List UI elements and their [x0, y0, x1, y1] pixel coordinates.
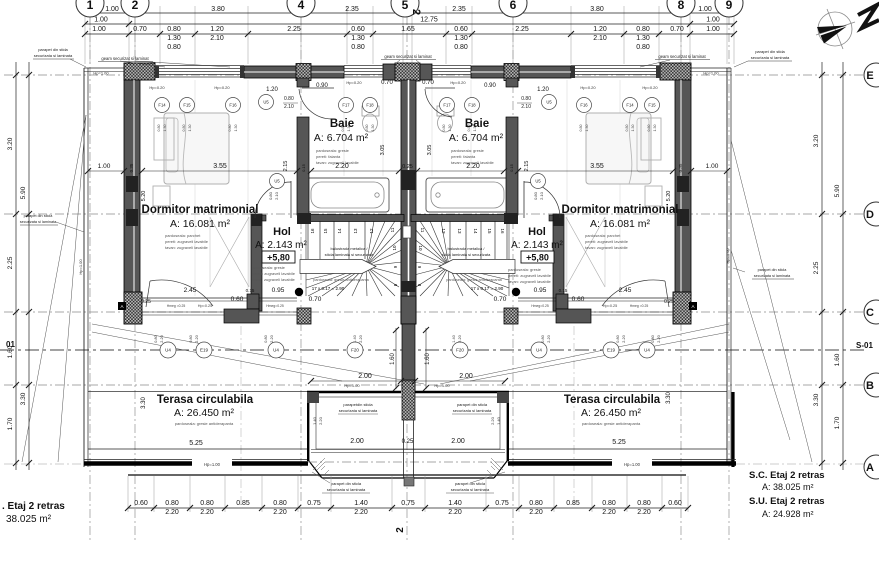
svg-text:3.55: 3.55 [590, 163, 604, 170]
svg-text:1.30: 1.30 [631, 125, 635, 132]
svg-text:2.00: 2.00 [451, 438, 465, 445]
svg-text:0.80: 0.80 [616, 335, 620, 342]
svg-text:12: 12 [369, 228, 374, 234]
svg-text:1.30: 1.30 [371, 125, 375, 132]
svg-text:B: B [866, 380, 874, 392]
svg-text:2.20: 2.20 [354, 509, 368, 516]
svg-text:0.80: 0.80 [284, 96, 294, 102]
svg-text:1.20: 1.20 [593, 26, 607, 33]
svg-text:2.20: 2.20 [200, 509, 214, 516]
svg-text:0.80: 0.80 [579, 125, 583, 132]
svg-text:3.30: 3.30 [813, 393, 820, 406]
svg-text:+5,80: +5,80 [267, 253, 290, 263]
svg-text:1.30: 1.30 [653, 125, 657, 132]
svg-text:1.00: 1.00 [105, 6, 119, 13]
svg-text:1.00: 1.00 [98, 163, 111, 170]
svg-text:Hp=0.20: Hp=0.20 [580, 85, 596, 90]
svg-text:1.30: 1.30 [585, 125, 589, 132]
svg-text:1.60: 1.60 [834, 353, 841, 366]
svg-text:0.80: 0.80 [228, 125, 232, 132]
svg-text:2.25: 2.25 [515, 26, 529, 33]
svg-text:E19: E19 [607, 348, 616, 353]
svg-text:A: 26.450 m²: A: 26.450 m² [581, 407, 642, 419]
svg-text:1.20: 1.20 [266, 87, 278, 93]
svg-text:2.25: 2.25 [813, 261, 820, 274]
svg-text:Dormitor matrimonial: Dormitor matrimonial [142, 204, 259, 216]
svg-text:0.60: 0.60 [351, 26, 365, 33]
svg-text:pereti: zugraveli lavabile: pereti: zugraveli lavabile [165, 239, 209, 244]
svg-text:2.20: 2.20 [466, 163, 480, 170]
svg-text:F20: F20 [351, 348, 359, 353]
svg-text:Hmeg =0.25: Hmeg =0.25 [167, 304, 186, 308]
svg-text:3.05: 3.05 [380, 145, 386, 156]
svg-text:1.30: 1.30 [454, 35, 468, 42]
svg-text:5.20: 5.20 [141, 191, 147, 202]
svg-text:1: 1 [87, 0, 94, 12]
svg-text:12.75: 12.75 [420, 17, 438, 24]
svg-text:0.60: 0.60 [134, 500, 148, 507]
svg-text:1.00: 1.00 [706, 26, 720, 33]
svg-text:sticla laminata si securizata: sticla laminata si securizata [325, 252, 374, 257]
svg-text:geam securizat si laminat: geam securizat si laminat [384, 54, 432, 59]
svg-text:0.80: 0.80 [154, 335, 158, 342]
svg-text:Hp=1.00: Hp=1.00 [344, 383, 360, 388]
svg-text:0.75: 0.75 [495, 500, 509, 507]
svg-text:A: 2.143 m²: A: 2.143 m² [255, 240, 307, 251]
svg-text:U4: U4 [165, 348, 171, 353]
svg-text:A: 16.081 m²: A: 16.081 m² [170, 218, 231, 230]
svg-text:Dormitor matrimonial: Dormitor matrimonial [562, 204, 679, 216]
svg-text:F18: F18 [468, 103, 476, 108]
svg-text:F16: F16 [580, 103, 588, 108]
svg-text:2.20: 2.20 [529, 509, 543, 516]
svg-text:12: 12 [441, 228, 446, 234]
svg-text:2.20: 2.20 [547, 335, 551, 342]
svg-text:0.80: 0.80 [541, 335, 545, 342]
svg-text:A: 38.025 m²: A: 38.025 m² [762, 482, 814, 492]
svg-text:0.25: 0.25 [141, 299, 151, 305]
svg-text:14: 14 [473, 228, 478, 234]
svg-text:6: 6 [510, 0, 517, 12]
svg-text:0.75: 0.75 [307, 500, 321, 507]
svg-text:2.25: 2.25 [7, 256, 14, 269]
svg-text:A: 6.704 m²: A: 6.704 m² [449, 132, 504, 144]
svg-text:0.85: 0.85 [236, 500, 250, 507]
svg-text:13: 13 [457, 228, 462, 234]
svg-text:0.25: 0.25 [664, 299, 674, 305]
svg-text:2.45: 2.45 [184, 287, 197, 294]
svg-text:2.20: 2.20 [160, 335, 164, 342]
svg-text:A: A [120, 304, 123, 309]
svg-text:0.80: 0.80 [636, 44, 650, 51]
svg-text:0.80: 0.80 [636, 26, 650, 33]
svg-text:1.00: 1.00 [94, 17, 108, 24]
svg-text:2.45: 2.45 [619, 287, 632, 294]
svg-text:2.15: 2.15 [283, 161, 289, 172]
svg-text:2.25: 2.25 [287, 26, 301, 33]
svg-text:2.10: 2.10 [521, 104, 531, 110]
svg-text:2.20: 2.20 [335, 163, 349, 170]
svg-text:parapet din sticla: parapet din sticla [331, 481, 362, 486]
svg-text:Terasa circulabila: Terasa circulabila [564, 394, 661, 406]
svg-text:0.35: 0.35 [129, 163, 134, 172]
svg-text:2.20: 2.20 [637, 509, 651, 516]
svg-text:pereti: faianta: pereti: faianta [316, 154, 341, 159]
svg-text:16: 16 [500, 228, 505, 234]
svg-text:5.90: 5.90 [834, 184, 841, 197]
svg-text:pereti: zugraveli lavabile: pereti: zugraveli lavabile [252, 271, 296, 276]
svg-text:1.30: 1.30 [167, 35, 181, 42]
svg-text:2.20: 2.20 [165, 509, 179, 516]
svg-text:1.00: 1.00 [92, 26, 106, 33]
svg-text:A: 24.928 m²: A: 24.928 m² [762, 509, 814, 519]
svg-text:3.30: 3.30 [666, 392, 672, 404]
svg-text:3.05: 3.05 [427, 145, 433, 156]
svg-text:Hmeg=0.25: Hmeg=0.25 [531, 304, 549, 308]
svg-text:2.10: 2.10 [274, 191, 279, 200]
svg-text:pardoseala: gresie: pardoseala: gresie [252, 265, 286, 270]
svg-text:1.20: 1.20 [537, 87, 549, 93]
svg-text:Hp=1.00: Hp=1.00 [703, 71, 719, 76]
svg-text:securizata si laminata: securizata si laminata [754, 274, 791, 278]
svg-text:Hp=1.00: Hp=1.00 [78, 259, 83, 275]
svg-text:pardoseala: gresie: pardoseala: gresie [508, 267, 542, 272]
svg-text:F14: F14 [626, 103, 634, 108]
svg-text:1.60: 1.60 [425, 353, 431, 365]
svg-text:1.40: 1.40 [312, 416, 317, 425]
svg-text:. Etaj 2 retras: . Etaj 2 retras [2, 501, 65, 512]
svg-text:1.30: 1.30 [234, 125, 238, 132]
svg-text:0.80: 0.80 [189, 335, 193, 342]
svg-text:0.95: 0.95 [272, 287, 285, 294]
svg-text:5.90: 5.90 [20, 186, 27, 199]
svg-text:Baie: Baie [330, 118, 354, 130]
svg-text:0.80: 0.80 [264, 335, 268, 342]
svg-text:16: 16 [310, 228, 315, 234]
svg-text:3.80: 3.80 [590, 6, 604, 13]
svg-text:2.00: 2.00 [350, 438, 364, 445]
svg-text:2.20: 2.20 [195, 335, 199, 342]
svg-text:0.70: 0.70 [494, 296, 507, 303]
svg-text:F17: F17 [342, 103, 350, 108]
svg-text:14: 14 [337, 228, 342, 234]
svg-text:3.80: 3.80 [211, 6, 225, 13]
svg-text:2.20: 2.20 [458, 335, 462, 342]
svg-text:0.15: 0.15 [509, 163, 514, 172]
svg-text:pereti: zugraveli lavabile: pereti: zugraveli lavabile [508, 273, 552, 278]
svg-text:securizata si laminata: securizata si laminata [751, 55, 790, 60]
svg-text:0.70: 0.70 [381, 80, 393, 86]
svg-text:0.70: 0.70 [422, 80, 434, 86]
svg-text:0.80: 0.80 [625, 125, 629, 132]
svg-text:0.80: 0.80 [273, 500, 287, 507]
svg-text:parapet din stida: parapet din stida [755, 49, 785, 54]
svg-text:E19: E19 [200, 348, 209, 353]
svg-text:0.80: 0.80 [521, 96, 531, 102]
svg-text:pardoseala: parchet: pardoseala: parchet [585, 233, 621, 238]
svg-text:2.20: 2.20 [359, 335, 363, 342]
svg-text:1.70: 1.70 [7, 417, 14, 430]
svg-text:securizata si laminata: securizata si laminata [327, 487, 366, 492]
svg-text:1.40: 1.40 [448, 500, 462, 507]
svg-text:0.80: 0.80 [529, 500, 543, 507]
svg-text:4: 4 [298, 0, 305, 12]
svg-text:S.C. Etaj 2 retras: S.C. Etaj 2 retras [749, 470, 825, 481]
svg-text:sticla laminata si securizata: sticla laminata si securizata [442, 252, 491, 257]
svg-text:A: 2.143 m²: A: 2.143 m² [511, 240, 563, 251]
svg-text:securizata si laminata: securizata si laminata [453, 408, 492, 413]
svg-text:2.10: 2.10 [539, 191, 544, 200]
svg-text:pardoseala: gresie antiderapan: pardoseala: gresie antiderapanta [313, 278, 369, 282]
svg-text:parapet din sticla: parapet din sticla [457, 402, 488, 407]
svg-text:F17: F17 [443, 103, 451, 108]
svg-text:U5: U5 [535, 179, 541, 184]
svg-text:U5: U5 [274, 179, 280, 184]
svg-text:0.70: 0.70 [133, 26, 147, 33]
svg-text:tavan: zugraveli lavabile: tavan: zugraveli lavabile [165, 245, 208, 250]
svg-text:A: 16.081 m²: A: 16.081 m² [590, 218, 651, 230]
svg-text:3.30: 3.30 [20, 392, 27, 405]
svg-text:2.00: 2.00 [459, 373, 473, 380]
svg-text:0.90: 0.90 [316, 83, 328, 89]
svg-text:Hp=1.00: Hp=1.00 [93, 71, 109, 76]
svg-text:15: 15 [323, 228, 328, 234]
svg-text:A: 26.450 m²: A: 26.450 m² [174, 407, 235, 419]
svg-text:11: 11 [390, 227, 395, 232]
svg-text:2.15: 2.15 [524, 161, 530, 172]
svg-text:S.U. Etaj 2 retras: S.U. Etaj 2 retras [749, 496, 825, 507]
svg-text:0.80: 0.80 [454, 44, 468, 51]
svg-text:0.15: 0.15 [559, 288, 568, 293]
svg-text:Hol: Hol [528, 226, 546, 238]
svg-text:securizata si laminata: securizata si laminata [339, 408, 378, 413]
svg-text:A: 6.704 m²: A: 6.704 m² [314, 132, 369, 144]
svg-text:0.25: 0.25 [402, 164, 413, 170]
svg-text:C: C [866, 307, 874, 319]
svg-text:securizata si laminata: securizata si laminata [20, 220, 57, 224]
svg-text:1.30: 1.30 [163, 125, 167, 132]
svg-text:U5: U5 [546, 100, 552, 105]
svg-text:parapet din sticla: parapet din sticla [24, 214, 54, 218]
svg-text:17 x 0.17 = 2.90: 17 x 0.17 = 2.90 [471, 286, 504, 291]
svg-text:parapetdin sticla: parapetdin sticla [343, 402, 373, 407]
svg-text:0.80: 0.80 [157, 125, 161, 132]
svg-text:S-01: S-01 [856, 341, 873, 350]
svg-text:0.80: 0.80 [647, 125, 651, 132]
svg-text:2: 2 [395, 527, 406, 533]
svg-text:1.30: 1.30 [188, 125, 192, 132]
svg-text:1.60: 1.60 [390, 353, 396, 365]
svg-text:pardoseala: gresie antiderapan: pardoseala: gresie antiderapanta [446, 278, 502, 282]
svg-text:1.40: 1.40 [496, 416, 501, 425]
svg-text:2.00: 2.00 [358, 373, 372, 380]
svg-text:E: E [866, 70, 873, 82]
svg-text:11: 11 [420, 228, 425, 233]
svg-text:2.20: 2.20 [270, 335, 274, 342]
svg-text:Hol: Hol [273, 226, 291, 238]
svg-text:Hp=0.20: Hp=0.20 [214, 85, 230, 90]
svg-text:0.95: 0.95 [534, 287, 547, 294]
svg-text:Hp=1.00: Hp=1.00 [624, 462, 641, 467]
svg-text:pereti: faianta: pereti: faianta [451, 154, 476, 159]
svg-text:A: A [866, 462, 874, 474]
svg-text:2.10: 2.10 [593, 35, 607, 42]
svg-text:15: 15 [487, 228, 492, 234]
svg-text:3.30: 3.30 [141, 397, 147, 409]
svg-text:0.85: 0.85 [566, 500, 580, 507]
svg-text:Hp=1.00: Hp=1.00 [204, 462, 221, 467]
svg-text:2.10: 2.10 [210, 35, 224, 42]
svg-text:0.60: 0.60 [572, 296, 585, 303]
svg-text:tavan: zugraveli lavabile: tavan: zugraveli lavabile [585, 245, 628, 250]
svg-text:0.80: 0.80 [268, 191, 273, 200]
svg-text:securizata si laminata: securizata si laminata [34, 53, 73, 58]
svg-text:0.80: 0.80 [165, 500, 179, 507]
svg-text:2.20: 2.20 [318, 416, 323, 425]
svg-text:pardoseala: gresie: pardoseala: gresie [451, 148, 485, 153]
svg-text:securizata si laminata: securizata si laminata [451, 487, 490, 492]
svg-text:0.80: 0.80 [637, 500, 651, 507]
svg-text:0.80: 0.80 [602, 500, 616, 507]
svg-text:10: 10 [418, 245, 423, 251]
svg-text:0.80: 0.80 [182, 125, 186, 132]
svg-text:1.20: 1.20 [210, 26, 224, 33]
svg-text:2.20: 2.20 [657, 335, 661, 342]
svg-text:U4: U4 [644, 348, 650, 353]
svg-text:0.15: 0.15 [246, 288, 255, 293]
svg-text:0.80: 0.80 [200, 500, 214, 507]
svg-text:Hp=1.00: Hp=1.00 [725, 248, 730, 264]
svg-text:0.80: 0.80 [365, 125, 369, 132]
svg-text:Hp=0.20: Hp=0.20 [642, 85, 658, 90]
svg-text:pardoseala: gresie antiderapan: pardoseala: gresie antiderapanta [582, 421, 641, 426]
svg-text:0.60: 0.60 [668, 500, 682, 507]
svg-text:5.25: 5.25 [189, 440, 203, 447]
svg-text:U4: U4 [273, 348, 279, 353]
svg-text:2.35: 2.35 [452, 6, 466, 13]
svg-text:1.30: 1.30 [351, 35, 365, 42]
svg-text:0.80: 0.80 [442, 125, 446, 132]
svg-text:F18: F18 [366, 103, 374, 108]
svg-text:5.20: 5.20 [666, 191, 672, 202]
svg-text:0.80: 0.80 [167, 44, 181, 51]
svg-text:Hp=0.20: Hp=0.20 [149, 85, 165, 90]
svg-text:5: 5 [402, 0, 409, 12]
svg-text:2.20: 2.20 [273, 509, 287, 516]
svg-text:0.15: 0.15 [301, 163, 306, 172]
svg-text:tavan: zugraveli lavabile: tavan: zugraveli lavabile [252, 277, 295, 282]
svg-text:1.00: 1.00 [706, 17, 720, 24]
svg-text:Hmeg=0.25: Hmeg=0.25 [266, 304, 284, 308]
svg-text:1.40: 1.40 [354, 500, 368, 507]
svg-text:8: 8 [678, 0, 685, 12]
svg-text:1.30: 1.30 [448, 125, 452, 132]
svg-text:0.75: 0.75 [401, 500, 415, 507]
svg-text:2.20: 2.20 [622, 335, 626, 342]
svg-text:U4: U4 [536, 348, 542, 353]
svg-text:pardoseala: gresie: pardoseala: gresie [316, 148, 350, 153]
svg-text:0.80: 0.80 [651, 335, 655, 342]
svg-text:U5: U5 [263, 100, 269, 105]
svg-text:Hp=0.25: Hp=0.25 [198, 304, 212, 308]
svg-text:0.80: 0.80 [533, 191, 538, 200]
svg-text:2.20: 2.20 [448, 509, 462, 516]
svg-text:A: A [691, 304, 694, 309]
svg-text:F20: F20 [456, 348, 464, 353]
svg-text:0.25: 0.25 [402, 439, 414, 445]
svg-text:1.65: 1.65 [401, 26, 415, 33]
svg-text:Baie: Baie [465, 118, 489, 130]
svg-text:13: 13 [353, 228, 358, 234]
svg-text:tavan: zugraveli lavabile: tavan: zugraveli lavabile [508, 279, 551, 284]
svg-text:geam securizat si laminat: geam securizat si laminat [101, 56, 149, 61]
svg-text:2.10: 2.10 [284, 104, 294, 110]
svg-text:pereti: zugraveli lavabile: pereti: zugraveli lavabile [585, 239, 629, 244]
svg-text:Terasa circulabila: Terasa circulabila [157, 394, 254, 406]
svg-text:balustrada metalica /: balustrada metalica / [448, 246, 486, 251]
svg-text:0.90: 0.90 [484, 83, 496, 89]
svg-text:1.60: 1.60 [7, 345, 14, 358]
svg-text:parapet din sticla: parapet din sticla [758, 268, 788, 272]
svg-text:1.00: 1.00 [706, 163, 719, 170]
svg-text:Hp=1.00: Hp=1.00 [434, 383, 450, 388]
svg-text:pardoseala: gresie antiderapan: pardoseala: gresie antiderapanta [175, 421, 234, 426]
svg-text:Hmeg =0.25: Hmeg =0.25 [630, 304, 649, 308]
svg-text:0.80: 0.80 [351, 44, 365, 51]
svg-text:2: 2 [410, 9, 422, 15]
svg-text:1.40: 1.40 [353, 335, 357, 342]
svg-text:1.30: 1.30 [636, 35, 650, 42]
svg-text:1.40: 1.40 [452, 335, 456, 342]
svg-text:balustrada metalica /: balustrada metalica / [331, 246, 369, 251]
svg-text:Hp=0.20: Hp=0.20 [450, 80, 466, 85]
svg-text:Hp=0.20: Hp=0.20 [346, 80, 362, 85]
svg-text:0.70: 0.70 [309, 296, 322, 303]
svg-text:0.80: 0.80 [167, 26, 181, 33]
svg-text:0.60: 0.60 [454, 26, 468, 33]
svg-text:0.35: 0.35 [678, 163, 683, 172]
svg-text:0.70: 0.70 [670, 26, 684, 33]
svg-text:3.55: 3.55 [213, 163, 227, 170]
svg-text:D: D [866, 209, 874, 221]
svg-text:5.25: 5.25 [612, 439, 626, 446]
svg-text:38.025 m²: 38.025 m² [6, 514, 52, 525]
svg-text:2.20: 2.20 [602, 509, 616, 516]
svg-text:F15: F15 [183, 103, 191, 108]
svg-text:9: 9 [726, 0, 733, 12]
svg-text:1.70: 1.70 [834, 416, 841, 429]
svg-text:Hp=0.25: Hp=0.25 [603, 304, 617, 308]
svg-text:F15: F15 [648, 103, 656, 108]
svg-text:0.60: 0.60 [231, 296, 244, 303]
svg-text:10: 10 [392, 245, 397, 251]
svg-text:parapet din sticla: parapet din sticla [455, 481, 486, 486]
svg-text:1.00: 1.00 [698, 6, 712, 13]
svg-text:parapet din stida: parapet din stida [38, 47, 68, 52]
svg-text:F14: F14 [158, 103, 166, 108]
svg-text:3.20: 3.20 [813, 134, 820, 147]
svg-text:2: 2 [132, 0, 139, 12]
svg-text:+5,80: +5,80 [526, 253, 549, 263]
svg-text:pardoseala: parchet: pardoseala: parchet [165, 233, 201, 238]
svg-text:3.20: 3.20 [7, 137, 14, 150]
svg-text:2.20: 2.20 [490, 416, 495, 425]
svg-text:geam securizat si laminat: geam securizat si laminat [658, 54, 706, 59]
svg-text:17 x 0.17 = 2.90: 17 x 0.17 = 2.90 [312, 286, 345, 291]
svg-text:2.35: 2.35 [345, 6, 359, 13]
svg-text:F16: F16 [229, 103, 237, 108]
